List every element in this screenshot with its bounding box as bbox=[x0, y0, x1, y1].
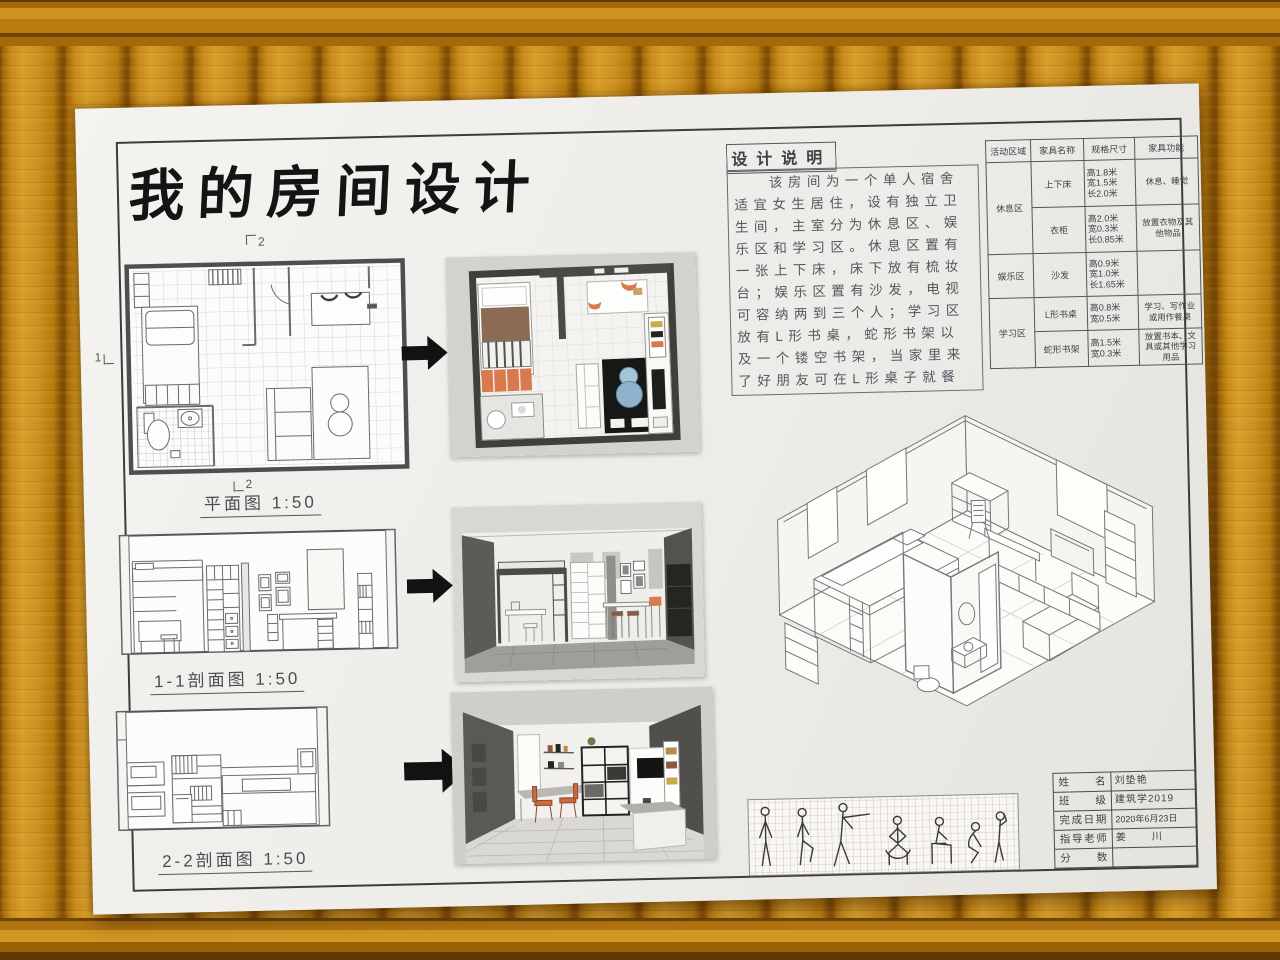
plan-section-marker-1-left: 1 bbox=[94, 350, 113, 364]
section-tick-icon bbox=[246, 235, 256, 245]
scale-figures-strip bbox=[747, 790, 1021, 880]
header-name: 家具名称 bbox=[1030, 138, 1083, 161]
title-block: 姓名 刘垫艳 班级 建筑学2019 完成日期 2020年6月23日 指导老师 姜… bbox=[1052, 770, 1198, 869]
furniture-name-cell: 上下床 bbox=[1031, 160, 1085, 207]
name-value: 刘垫艳 bbox=[1111, 771, 1195, 791]
bamboo-mat-bottom-edge bbox=[0, 918, 1280, 960]
zone-cell: 休息区 bbox=[986, 162, 1033, 255]
score-value bbox=[1113, 847, 1197, 867]
spec-cell: 高2.0米 宽0.3米 长0.85米 bbox=[1085, 205, 1137, 252]
function-cell: 放置书本、文具或其他学习用品 bbox=[1139, 328, 1203, 365]
poster-sheet: 我的房间设计 bbox=[75, 83, 1217, 914]
render-elevation-photo bbox=[451, 502, 705, 683]
section-label-1-1: 1-1剖面图 1:50 bbox=[150, 664, 305, 695]
class-value: 建筑学2019 bbox=[1112, 790, 1196, 810]
design-notes-box: 该房间为一个单人宿舍 适宜女生居住，设有独立卫 生间，主室分为休息区、娱 乐区和… bbox=[727, 164, 984, 396]
zone-cell: 娱乐区 bbox=[988, 254, 1034, 299]
completion-date-label: 完成日期 bbox=[1054, 811, 1112, 830]
header-function: 家具功能 bbox=[1134, 136, 1197, 159]
furniture-name-cell: 衣柜 bbox=[1032, 206, 1086, 253]
poster-title: 我的房间设计 bbox=[127, 142, 571, 233]
table-row: 休息区 上下床 高1.8米 宽1.5米 长2.0米 休息、睡觉 bbox=[986, 158, 1199, 209]
score-label: 分数 bbox=[1055, 848, 1113, 867]
advisor-label: 指导老师 bbox=[1055, 829, 1113, 848]
section-label-2-2: 2-2剖面图 1:50 bbox=[158, 844, 313, 875]
render-top-view-photo bbox=[445, 252, 699, 458]
section-2-2-drawing bbox=[112, 694, 405, 841]
axonometric-drawing bbox=[749, 376, 1177, 733]
furniture-name-cell: 蛇形书架 bbox=[1035, 330, 1089, 367]
completion-date-value: 2020年6月23日 bbox=[1112, 809, 1196, 829]
plan-scale-label: 平面图 1:50 bbox=[200, 487, 321, 518]
name-label: 姓名 bbox=[1053, 773, 1111, 792]
spec-cell: 高1.8米 宽1.5米 长2.0米 bbox=[1084, 159, 1136, 206]
function-cell: 休息、睡觉 bbox=[1135, 158, 1199, 205]
section-tick-icon bbox=[103, 354, 113, 364]
table-row: 娱乐区 沙发 高0.9米 宽1.0米 长1.65米 bbox=[988, 250, 1201, 299]
function-cell: 放置衣物及其他物品 bbox=[1136, 204, 1200, 251]
furniture-name-cell: L形书桌 bbox=[1034, 296, 1088, 331]
arrow-right-icon bbox=[406, 565, 453, 606]
bamboo-mat-top-edge bbox=[0, 0, 1280, 46]
furniture-table: 活动区域 家具名称 规格尺寸 家具功能 休息区 上下床 高1.8米 宽1.5米 … bbox=[985, 135, 1203, 369]
spec-cell: 高0.8米 宽0.5米 bbox=[1087, 295, 1139, 330]
function-cell bbox=[1137, 250, 1201, 295]
spec-cell: 高0.9米 宽1.0米 长1.65米 bbox=[1086, 251, 1138, 296]
photo-of-design-poster: { "poster": { "title": "我的房间设计", "design… bbox=[0, 0, 1280, 960]
arrow-right-icon bbox=[401, 332, 448, 373]
plan-section-marker-2-top: 2 bbox=[246, 235, 265, 249]
table-row: 学习区 L形书桌 高0.8米 宽0.5米 学习、写作业或用作餐桌 bbox=[989, 294, 1202, 333]
furniture-name-cell: 沙发 bbox=[1033, 252, 1087, 297]
class-label: 班级 bbox=[1054, 792, 1112, 811]
advisor-value: 姜 川 bbox=[1113, 828, 1197, 848]
zone-cell: 学习区 bbox=[989, 298, 1036, 369]
title-block-row: 分数 bbox=[1055, 847, 1197, 868]
spec-cell: 高1.5米 宽0.3米 bbox=[1088, 329, 1140, 366]
header-zone: 活动区域 bbox=[985, 140, 1030, 163]
floor-plan-drawing bbox=[120, 251, 415, 483]
section-1-1-drawing bbox=[114, 520, 402, 661]
render-perspective-photo bbox=[450, 687, 716, 865]
function-cell: 学习、写作业或用作餐桌 bbox=[1138, 294, 1202, 329]
header-spec: 规格尺寸 bbox=[1083, 137, 1134, 160]
